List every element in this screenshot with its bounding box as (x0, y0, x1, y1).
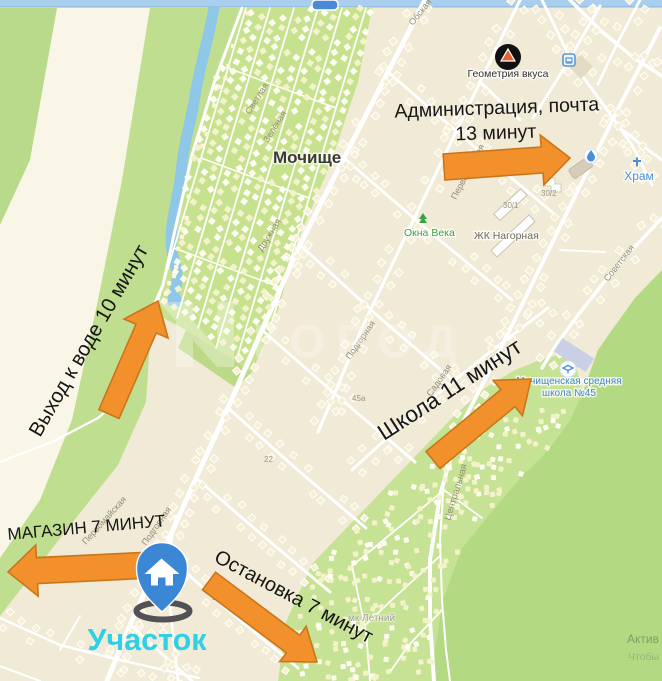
svg-text:Мочищенская средняя: Мочищенская средняя (516, 376, 621, 387)
svg-text:ЖК Нагорная: ЖК Нагорная (474, 230, 539, 242)
svg-text:Геометрия вкуса: Геометрия вкуса (467, 68, 548, 80)
svg-text:ГОРОД: ГОРОД (253, 315, 467, 367)
svg-text:Актив: Актив (627, 632, 659, 646)
svg-text:школа №45: школа №45 (542, 388, 596, 399)
svg-text:Участок: Участок (87, 623, 207, 657)
svg-text:30/1: 30/1 (503, 201, 519, 210)
svg-text:Чтобы: Чтобы (628, 651, 659, 663)
svg-text:Мочище: Мочище (273, 148, 341, 167)
svg-text:45а: 45а (352, 394, 366, 403)
svg-text:22: 22 (264, 455, 273, 464)
svg-text:30/2: 30/2 (541, 189, 557, 198)
svg-text:13 минут: 13 минут (455, 121, 537, 146)
svg-text:Храм: Храм (624, 169, 654, 183)
svg-text:Окна Века: Окна Века (404, 227, 455, 239)
